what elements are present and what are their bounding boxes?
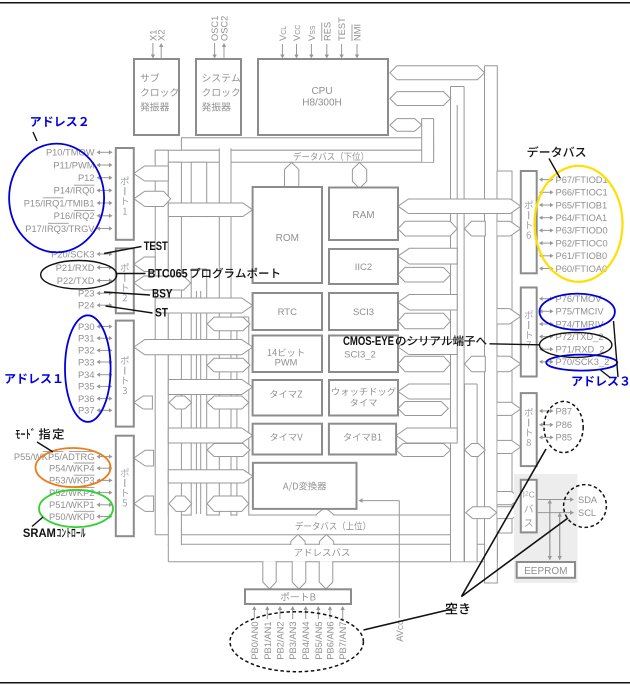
- svg-text:ROM: ROM: [276, 233, 299, 244]
- svg-text:OSC2: OSC2: [220, 16, 230, 41]
- svg-text:P37: P37: [78, 406, 95, 416]
- svg-text:IIC2: IIC2: [355, 262, 372, 273]
- svg-text:CMOS-EYE: CMOS-EYE: [343, 334, 394, 348]
- svg-text:SCL: SCL: [578, 508, 596, 518]
- svg-text:P12: P12: [78, 173, 95, 183]
- svg-text:P16/IRQ2: P16/IRQ2: [54, 211, 95, 221]
- svg-text:SDA: SDA: [578, 495, 598, 505]
- svg-text:RES: RES: [322, 22, 332, 41]
- svg-text:P20/SCK3: P20/SCK3: [51, 249, 94, 259]
- svg-text:P31: P31: [78, 334, 95, 344]
- svg-text:P51/WKP1: P51/WKP1: [49, 500, 94, 510]
- svg-text:P62/FTIOC0: P62/FTIOC0: [556, 238, 608, 248]
- svg-text:P33: P33: [78, 357, 95, 367]
- svg-text:P36: P36: [78, 394, 95, 404]
- svg-text:P85: P85: [556, 433, 573, 443]
- svg-text:P23: P23: [78, 289, 95, 299]
- svg-text:TEST: TEST: [144, 239, 169, 253]
- svg-text:PB5/AN5: PB5/AN5: [314, 621, 324, 659]
- svg-text:P64/FTIOA1: P64/FTIOA1: [556, 213, 608, 223]
- svg-text:P86: P86: [556, 420, 573, 430]
- svg-text:H8/300H: H8/300H: [302, 98, 341, 109]
- svg-text:P17/IRQ3/TRGV: P17/IRQ3/TRGV: [25, 224, 95, 234]
- svg-text:P15/IRQ1/TMIB1: P15/IRQ1/TMIB1: [24, 198, 95, 208]
- svg-text:RAM: RAM: [352, 210, 374, 221]
- svg-text:P75/TMCIV: P75/TMCIV: [556, 307, 605, 317]
- svg-text:P60/FTIOA0: P60/FTIOA0: [556, 264, 608, 274]
- svg-text:P32: P32: [78, 346, 95, 356]
- svg-text:P55/WKP5/ADTRG: P55/WKP5/ADTRG: [14, 452, 95, 462]
- svg-text:PB0/AN0: PB0/AN0: [250, 621, 260, 659]
- svg-text:CPU: CPU: [311, 86, 332, 97]
- svg-text:P87: P87: [556, 406, 573, 416]
- svg-text:RTC: RTC: [278, 307, 297, 318]
- svg-text:BSY: BSY: [152, 287, 173, 301]
- svg-text:SCI3: SCI3: [353, 307, 374, 318]
- svg-text:P54/WKP4: P54/WKP4: [49, 464, 94, 474]
- svg-text:P63/FTIOD0: P63/FTIOD0: [556, 226, 608, 236]
- svg-text:P70/SCK3_2: P70/SCK3_2: [556, 357, 610, 367]
- svg-text:P61/FTIOB0: P61/FTIOB0: [556, 251, 608, 261]
- svg-text:P35: P35: [78, 382, 95, 392]
- svg-text:PB6/AN6: PB6/AN6: [326, 621, 336, 659]
- svg-text:SCI3_2: SCI3_2: [344, 350, 376, 361]
- svg-text:PWM: PWM: [275, 358, 298, 368]
- svg-text:P67/FTIOD1: P67/FTIOD1: [556, 175, 608, 185]
- svg-text:P11/PWM: P11/PWM: [53, 160, 94, 170]
- svg-text:NMI: NMI: [353, 24, 363, 41]
- svg-text:PB7/AN7: PB7/AN7: [338, 621, 348, 659]
- svg-text:P50/WKP0: P50/WKP0: [49, 512, 94, 522]
- svg-text:PB1/AN1: PB1/AN1: [263, 621, 273, 659]
- svg-text:ST: ST: [155, 306, 169, 320]
- svg-text:P71/RXD_2: P71/RXD_2: [556, 345, 605, 355]
- svg-text:P65/FTIOB1: P65/FTIOB1: [556, 200, 608, 210]
- svg-text:P14/IRQ0: P14/IRQ0: [54, 186, 95, 196]
- svg-text:PB4/AN4: PB4/AN4: [301, 621, 311, 659]
- svg-text:P34: P34: [78, 370, 95, 380]
- svg-text:EEPROM: EEPROM: [524, 566, 567, 577]
- svg-text:SRAM: SRAM: [23, 526, 56, 540]
- svg-text:X2: X2: [157, 30, 167, 41]
- svg-text:TEST: TEST: [337, 17, 347, 41]
- svg-text:P30: P30: [78, 322, 95, 332]
- svg-text:PB3/AN3: PB3/AN3: [288, 621, 298, 659]
- svg-text:BTC065: BTC065: [148, 267, 188, 281]
- svg-text:P22/TXD: P22/TXD: [57, 276, 95, 286]
- svg-text:P21/RXD: P21/RXD: [56, 263, 95, 273]
- svg-text:P24: P24: [78, 301, 95, 311]
- svg-text:PB2/AN2: PB2/AN2: [276, 621, 286, 659]
- svg-text:P66/FTIOC1: P66/FTIOC1: [556, 188, 608, 198]
- svg-text:I2C: I2C: [523, 490, 535, 500]
